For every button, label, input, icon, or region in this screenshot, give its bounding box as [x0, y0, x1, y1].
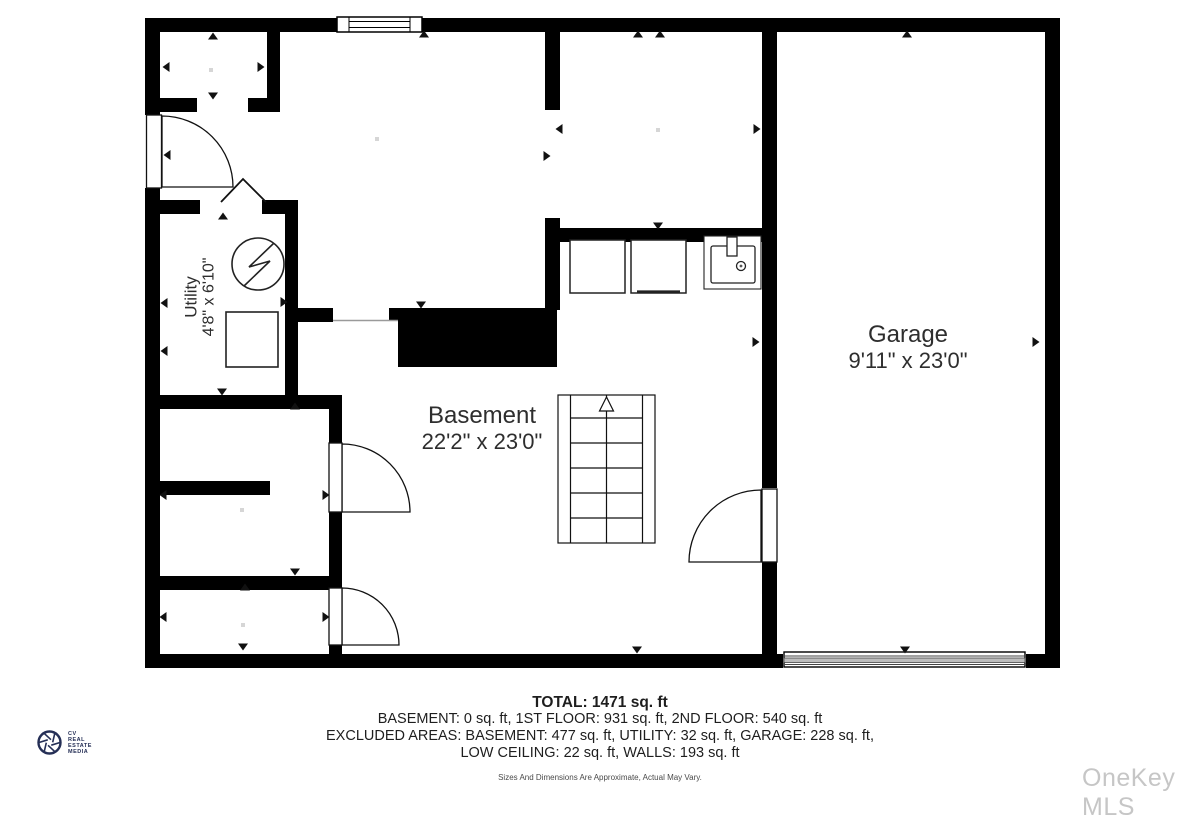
- garage-room-name: Garage: [848, 322, 967, 349]
- garage-room-label: Garage 9'11" x 23'0": [848, 322, 967, 374]
- dryer-icon: [631, 240, 686, 293]
- direction-arrow-icon: [163, 62, 170, 72]
- heater-icon: [232, 238, 284, 290]
- sink-icon: [704, 236, 761, 289]
- direction-arrow-icon: [161, 346, 168, 356]
- utility-room-name: Utility: [182, 258, 201, 337]
- utility-room-label: Utility 4'8" x 6'10": [182, 258, 219, 337]
- garage-entry-door-icon: [689, 489, 777, 562]
- photographer-logo: CV REAL ESTATE MEDIA: [36, 729, 92, 756]
- floor-plan-drawing: [0, 0, 1200, 800]
- direction-arrow-icon: [161, 298, 168, 308]
- direction-arrow-icon: [238, 644, 248, 651]
- direction-arrow-icon: [754, 124, 761, 134]
- direction-arrow-icon: [753, 337, 760, 347]
- scan-mark: [240, 508, 244, 512]
- direction-arrow-icon: [1033, 337, 1040, 347]
- garage-door-icon: [784, 652, 1025, 667]
- aperture-icon: [36, 729, 63, 756]
- direction-arrow-icon: [290, 569, 300, 576]
- water-tank-icon: [226, 312, 278, 367]
- summary-excluded-2: LOW CEILING: 22 sq. ft, WALLS: 193 sq. f…: [0, 745, 1200, 762]
- stairs-icon: [558, 395, 655, 543]
- scan-mark: [656, 128, 660, 132]
- low-ceiling-mass: [398, 308, 557, 367]
- summary-floors: BASEMENT: 0 sq. ft, 1ST FLOOR: 931 sq. f…: [0, 711, 1200, 728]
- direction-arrow-icon: [217, 389, 227, 396]
- scan-mark: [241, 623, 245, 627]
- storage-door-icon: [329, 443, 410, 512]
- direction-arrow-icon: [544, 151, 551, 161]
- area-summary: TOTAL: 1471 sq. ft BASEMENT: 0 sq. ft, 1…: [0, 694, 1200, 782]
- basement-room-name: Basement: [422, 403, 543, 430]
- floor-plan-page: { "plan": { "rooms": [ { "name": "Utilit…: [0, 0, 1200, 800]
- summary-disclaimer: Sizes And Dimensions Are Approximate, Ac…: [0, 773, 1200, 782]
- direction-arrow-icon: [258, 62, 265, 72]
- summary-excluded: EXCLUDED AREAS: BASEMENT: 477 sq. ft, UT…: [0, 728, 1200, 745]
- logo-line-4: MEDIA: [68, 749, 92, 755]
- basement-room-label: Basement 22'2" x 23'0": [422, 403, 543, 455]
- entry-door-icon: [147, 115, 234, 188]
- logo-text: CV REAL ESTATE MEDIA: [68, 731, 92, 755]
- summary-total: TOTAL: 1471 sq. ft: [0, 694, 1200, 711]
- basement-room-dimensions: 22'2" x 23'0": [422, 430, 543, 455]
- direction-arrow-icon: [556, 124, 563, 134]
- washer-icon: [570, 240, 625, 293]
- doors: [147, 115, 778, 645]
- scan-mark: [209, 68, 213, 72]
- direction-arrow-icon: [632, 647, 642, 654]
- direction-arrow-icon: [208, 33, 218, 40]
- direction-arrow-icon: [416, 302, 426, 309]
- lower-room-door-icon: [329, 588, 399, 645]
- mls-watermark: OneKey MLS: [1082, 764, 1200, 822]
- garage-room-dimensions: 9'11" x 23'0": [848, 349, 967, 374]
- window-icon: [337, 17, 422, 32]
- scan-mark: [375, 137, 379, 141]
- utility-room-dimensions: 4'8" x 6'10": [201, 258, 219, 337]
- direction-arrow-icon: [160, 612, 167, 622]
